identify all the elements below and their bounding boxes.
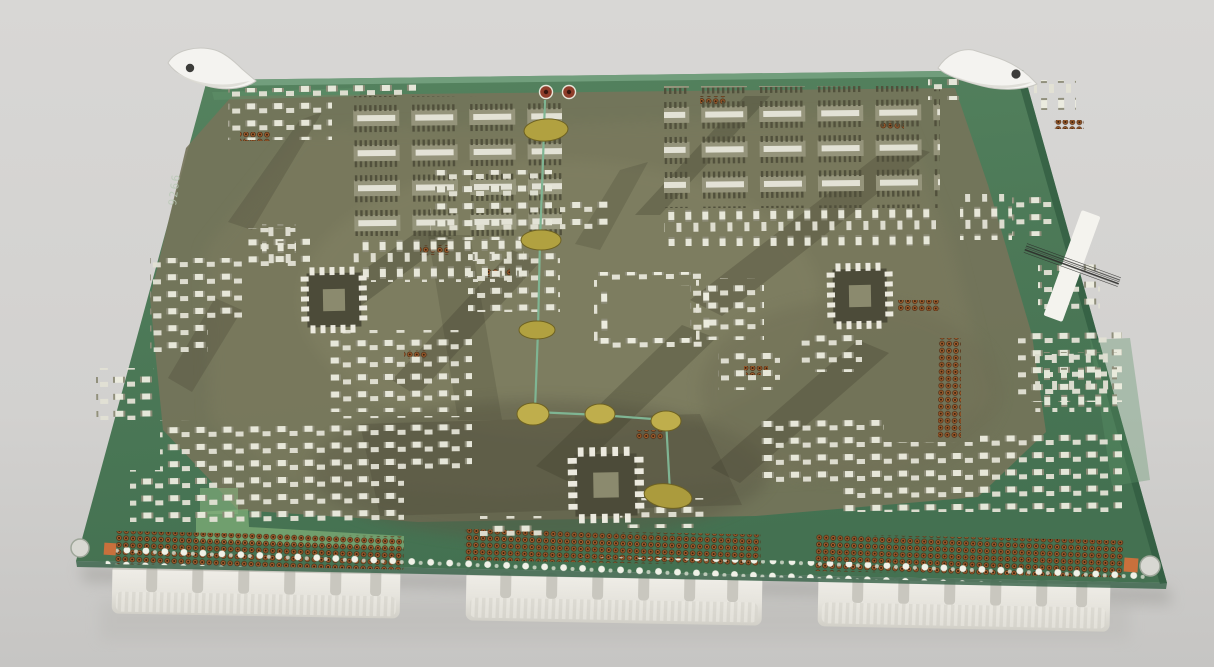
orange-pad-left — [104, 543, 117, 556]
circuit-board: 9266 — [71, 70, 1167, 589]
qfp-footprint-left — [300, 266, 367, 333]
handle-rivet-left — [186, 64, 194, 72]
pcb-photo-scene: 9266 — [0, 0, 1214, 667]
mounting-hole-left — [71, 539, 89, 557]
handle-rivet-right — [1011, 69, 1020, 78]
qfp-footprint-right — [826, 262, 893, 329]
qfp-footprint-bottom — [567, 446, 644, 523]
orange-pad-right — [1124, 558, 1139, 573]
mounting-hole-right — [1140, 556, 1160, 576]
pcb-photo: 9266 — [0, 0, 1214, 667]
